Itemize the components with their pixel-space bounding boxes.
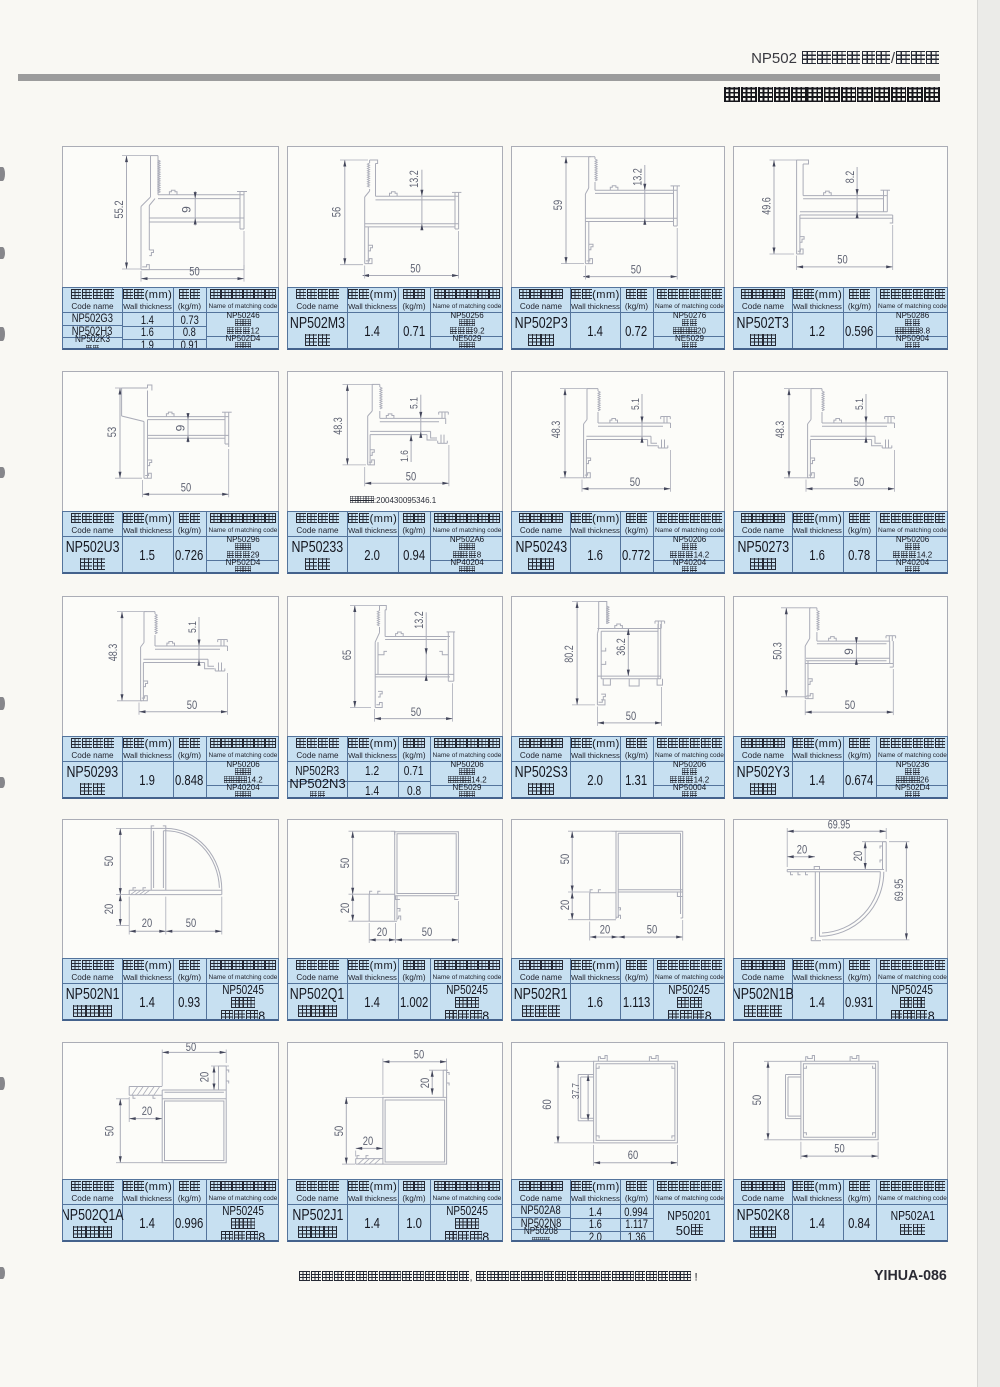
svg-text:20: 20 <box>102 904 116 915</box>
svg-text:20: 20 <box>338 903 352 914</box>
svg-text:50: 50 <box>186 1043 197 1054</box>
svg-text:50: 50 <box>181 481 192 495</box>
svg-text:9: 9 <box>180 206 194 213</box>
svg-text:60: 60 <box>540 1099 554 1110</box>
svg-text:50: 50 <box>411 705 422 719</box>
svg-text:50: 50 <box>631 263 642 277</box>
svg-text:50: 50 <box>189 265 200 279</box>
svg-text:9: 9 <box>842 648 856 655</box>
svg-text:5.1: 5.1 <box>408 397 420 409</box>
svg-text:13.2: 13.2 <box>633 168 645 186</box>
svg-text:48.3: 48.3 <box>551 421 563 439</box>
svg-text:50: 50 <box>854 475 865 489</box>
svg-text:69.95: 69.95 <box>828 820 850 832</box>
svg-text:50: 50 <box>837 253 848 267</box>
svg-text:50: 50 <box>410 262 421 276</box>
svg-text:20: 20 <box>418 1078 432 1089</box>
svg-text:50.3: 50.3 <box>773 642 785 660</box>
svg-text:20: 20 <box>363 1134 374 1148</box>
svg-text:50: 50 <box>834 1142 845 1156</box>
svg-text:49.6: 49.6 <box>762 197 774 215</box>
svg-text:20: 20 <box>198 1072 212 1083</box>
svg-text:60: 60 <box>628 1148 639 1162</box>
svg-text:50: 50 <box>414 1048 425 1062</box>
svg-text:50: 50 <box>647 923 658 937</box>
svg-text:50: 50 <box>630 475 641 489</box>
svg-text:20: 20 <box>142 916 153 930</box>
svg-text:50: 50 <box>103 1126 117 1137</box>
svg-text:9: 9 <box>174 424 188 431</box>
svg-text:53: 53 <box>105 427 119 438</box>
svg-text:50: 50 <box>626 709 637 723</box>
svg-text:20: 20 <box>142 1104 153 1118</box>
svg-text:1.6: 1.6 <box>399 450 411 462</box>
svg-text:20: 20 <box>558 900 572 911</box>
svg-text:20: 20 <box>600 923 611 937</box>
svg-text:50: 50 <box>102 856 116 867</box>
svg-text:5.1: 5.1 <box>187 621 199 633</box>
svg-text:56: 56 <box>330 207 344 218</box>
svg-text:20: 20 <box>797 843 808 857</box>
svg-text:69.95: 69.95 <box>894 879 906 901</box>
svg-text:50: 50 <box>332 1126 346 1137</box>
svg-text:50: 50 <box>406 470 417 484</box>
svg-text:37.7: 37.7 <box>570 1083 582 1099</box>
svg-text:50: 50 <box>186 916 197 930</box>
svg-text:65: 65 <box>340 650 354 661</box>
svg-text:8.2: 8.2 <box>845 171 857 184</box>
svg-text:50: 50 <box>338 858 352 869</box>
svg-text:36.2: 36.2 <box>616 638 628 656</box>
svg-text:59: 59 <box>551 200 565 211</box>
svg-text:50: 50 <box>558 854 572 865</box>
svg-text:80.2: 80.2 <box>564 645 576 663</box>
svg-text:13.2: 13.2 <box>414 611 426 629</box>
svg-text:20: 20 <box>377 925 388 939</box>
svg-text:48.3: 48.3 <box>775 421 787 439</box>
svg-text:50: 50 <box>422 925 433 939</box>
svg-text:13.2: 13.2 <box>409 170 421 188</box>
svg-text:5.1: 5.1 <box>630 398 642 410</box>
svg-text:48.3: 48.3 <box>108 644 120 662</box>
svg-text:5.1: 5.1 <box>854 398 866 410</box>
svg-text:50: 50 <box>750 1095 764 1106</box>
svg-text:48.3: 48.3 <box>333 417 345 435</box>
svg-text:20: 20 <box>851 851 865 862</box>
svg-text:50: 50 <box>187 698 198 712</box>
svg-text:55.2: 55.2 <box>112 200 126 218</box>
svg-text:50: 50 <box>845 698 856 712</box>
